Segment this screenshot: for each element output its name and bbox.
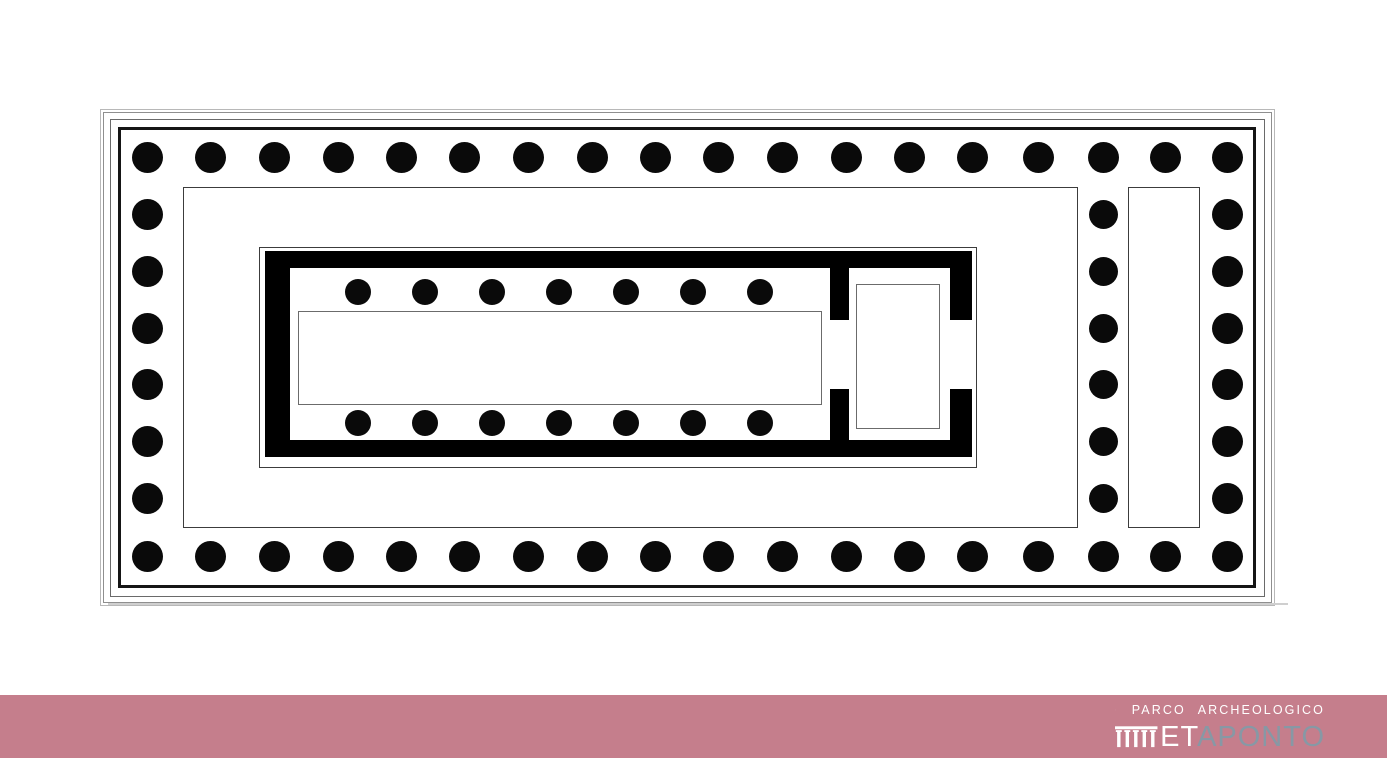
peristyle-south-column-dot bbox=[640, 541, 671, 572]
cella-wall-west bbox=[265, 251, 290, 457]
cella-interior-north-column-dot bbox=[613, 279, 639, 305]
adyton-wall-lower bbox=[830, 389, 849, 440]
front-inner-row-column-dot bbox=[1089, 427, 1118, 456]
peristyle-north-column-dot bbox=[132, 142, 163, 173]
peristyle-north-column-dot bbox=[1023, 142, 1054, 173]
peristyle-west-column-dot bbox=[132, 483, 163, 514]
peristyle-north-column-dot bbox=[831, 142, 862, 173]
peristyle-south-column-dot bbox=[767, 541, 798, 572]
front-inner-row-column-dot bbox=[1089, 484, 1118, 513]
adyton-wall-upper bbox=[830, 268, 849, 320]
cella-interior-north-column-dot bbox=[479, 279, 505, 305]
cella-wall-north bbox=[265, 251, 972, 268]
metaponto-logo: PARCO ARCHEOLOGICO ETAPONTO bbox=[1115, 700, 1325, 756]
peristyle-east-column-dot bbox=[1212, 256, 1243, 287]
peristyle-north-column-dot bbox=[1088, 142, 1119, 173]
peristyle-west-column-dot bbox=[132, 199, 163, 230]
peristyle-north-column-dot bbox=[323, 142, 354, 173]
peristyle-north-column-dot bbox=[894, 142, 925, 173]
peristyle-south-column-dot bbox=[323, 541, 354, 572]
peristyle-south-column-dot bbox=[1088, 541, 1119, 572]
peristyle-south-column-dot bbox=[132, 541, 163, 572]
right-foundation bbox=[1128, 187, 1200, 528]
peristyle-north-column-dot bbox=[513, 142, 544, 173]
peristyle-south-column-dot bbox=[831, 541, 862, 572]
cella-wall-east-upper bbox=[950, 268, 972, 320]
peristyle-north-column-dot bbox=[195, 142, 226, 173]
peristyle-north-column-dot bbox=[386, 142, 417, 173]
peristyle-north-column-dot bbox=[259, 142, 290, 173]
peristyle-south-column-dot bbox=[577, 541, 608, 572]
cella-interior-north-column-dot bbox=[412, 279, 438, 305]
temple-plan-diagram bbox=[0, 0, 1387, 700]
cella-interior-south-column-dot bbox=[680, 410, 706, 436]
peristyle-north-column-dot bbox=[1212, 142, 1243, 173]
peristyle-west-column-dot bbox=[132, 313, 163, 344]
brand-aponto-text: APONTO bbox=[1197, 721, 1325, 753]
peristyle-south-column-dot bbox=[449, 541, 480, 572]
adyton-base bbox=[856, 284, 940, 429]
peristyle-south-column-dot bbox=[1023, 541, 1054, 572]
front-inner-row-column-dot bbox=[1089, 200, 1118, 229]
peristyle-south-column-dot bbox=[894, 541, 925, 572]
peristyle-north-column-dot bbox=[1150, 142, 1181, 173]
naos-floor bbox=[298, 311, 822, 405]
cella-interior-north-column-dot bbox=[680, 279, 706, 305]
cella-wall-east-lower bbox=[950, 389, 972, 440]
logo-bottom-row: ETAPONTO bbox=[1115, 721, 1325, 751]
cella-interior-north-column-dot bbox=[345, 279, 371, 305]
peristyle-east-column-dot bbox=[1212, 313, 1243, 344]
cella-interior-north-column-dot bbox=[546, 279, 572, 305]
peristyle-south-column-dot bbox=[1150, 541, 1181, 572]
peristyle-north-column-dot bbox=[577, 142, 608, 173]
peristyle-west-column-dot bbox=[132, 426, 163, 457]
peristyle-south-column-dot bbox=[703, 541, 734, 572]
peristyle-north-column-dot bbox=[703, 142, 734, 173]
cella-wall-south bbox=[265, 440, 972, 457]
cella-interior-north-column-dot bbox=[747, 279, 773, 305]
peristyle-west-column-dot bbox=[132, 369, 163, 400]
front-inner-row-column-dot bbox=[1089, 257, 1118, 286]
peristyle-north-column-dot bbox=[767, 142, 798, 173]
peristyle-north-column-dot bbox=[957, 142, 988, 173]
peristyle-east-column-dot bbox=[1212, 199, 1243, 230]
peristyle-south-column-dot bbox=[386, 541, 417, 572]
brand-et-text: ET bbox=[1160, 721, 1197, 753]
cella-interior-south-column-dot bbox=[546, 410, 572, 436]
peristyle-east-column-dot bbox=[1212, 369, 1243, 400]
cella-interior-south-column-dot bbox=[345, 410, 371, 436]
peristyle-north-column-dot bbox=[640, 142, 671, 173]
front-inner-row-column-dot bbox=[1089, 314, 1118, 343]
peristyle-south-column-dot bbox=[195, 541, 226, 572]
colonnade-m-icon bbox=[1115, 722, 1159, 751]
front-inner-row-column-dot bbox=[1089, 370, 1118, 399]
peristyle-east-column-dot bbox=[1212, 426, 1243, 457]
peristyle-south-column-dot bbox=[957, 541, 988, 572]
cella-interior-south-column-dot bbox=[479, 410, 505, 436]
peristyle-south-column-dot bbox=[259, 541, 290, 572]
temple-portico-icon bbox=[1115, 702, 1116, 718]
logo-top-row: PARCO ARCHEOLOGICO bbox=[1115, 700, 1325, 720]
cella-interior-south-column-dot bbox=[613, 410, 639, 436]
scan-shadow bbox=[108, 603, 1288, 605]
cella-interior-south-column-dot bbox=[412, 410, 438, 436]
brand-parco-text: PARCO ARCHEOLOGICO bbox=[1132, 700, 1325, 720]
peristyle-east-column-dot bbox=[1212, 483, 1243, 514]
cella-interior-south-column-dot bbox=[747, 410, 773, 436]
peristyle-west-column-dot bbox=[132, 256, 163, 287]
peristyle-south-column-dot bbox=[1212, 541, 1243, 572]
brand-metaponto-text: ETAPONTO bbox=[1160, 723, 1325, 751]
footer-brand-band: PARCO ARCHEOLOGICO ETAPONTO bbox=[0, 695, 1387, 758]
peristyle-south-column-dot bbox=[513, 541, 544, 572]
peristyle-north-column-dot bbox=[449, 142, 480, 173]
